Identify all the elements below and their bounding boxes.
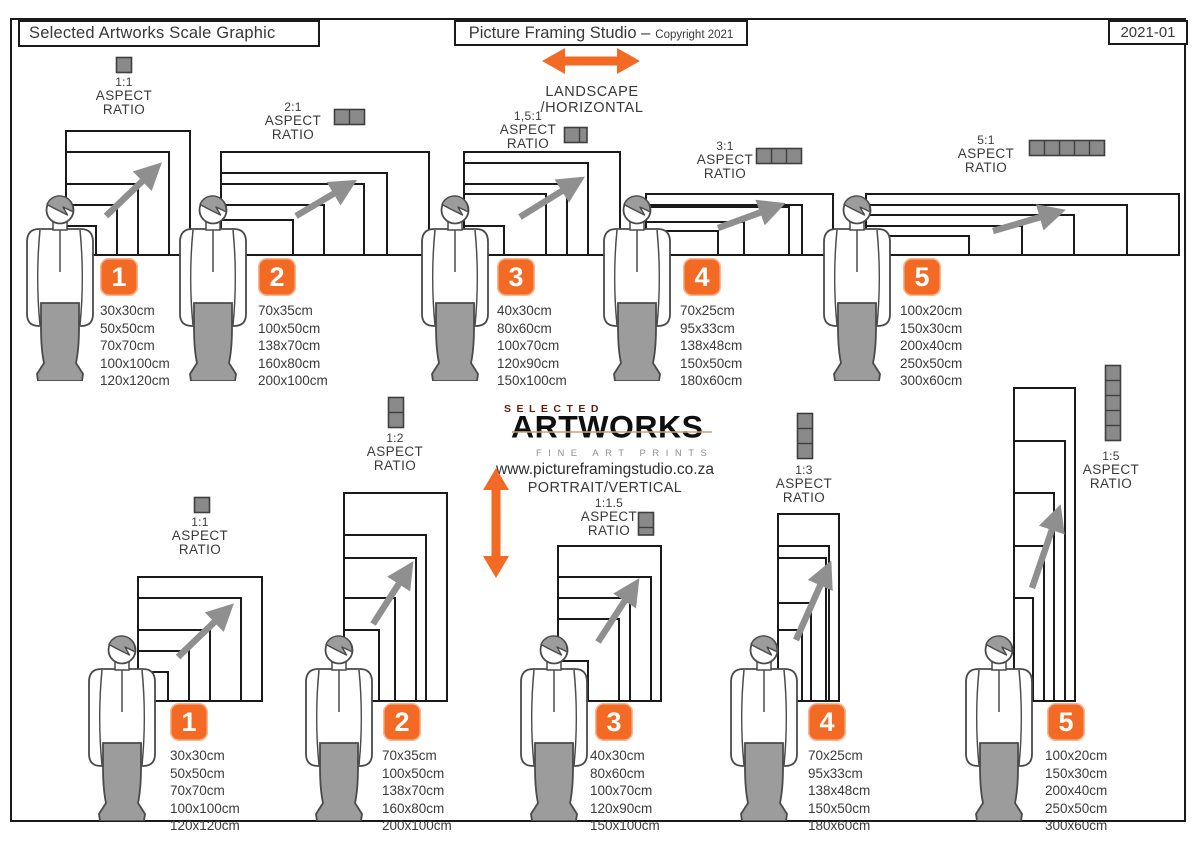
aspect-ratio-label: 1:1ASPECTRATIO <box>172 516 228 556</box>
size-item: 70x25cm <box>808 747 870 765</box>
human-figure <box>512 635 596 821</box>
human-figure <box>815 195 899 381</box>
size-item: 70x35cm <box>258 302 328 320</box>
aspect-word: ASPECT <box>500 123 556 137</box>
aspect-ratio-icon <box>387 396 405 429</box>
group-number-badge: 3 <box>595 703 633 741</box>
size-item: 120x90cm <box>590 800 660 818</box>
size-item: 180x60cm <box>680 372 742 390</box>
ratio-word: RATIO <box>96 103 152 117</box>
aspect-ratio-icon <box>563 126 589 144</box>
group-number: 2 <box>269 264 284 291</box>
size-list: 100x20cm150x30cm200x40cm250x50cm300x60cm <box>900 302 962 390</box>
aspect-ratio-icon <box>333 108 366 126</box>
aspect-word: ASPECT <box>958 147 1014 161</box>
size-item: 200x100cm <box>258 372 328 390</box>
size-item: 100x100cm <box>100 355 170 373</box>
size-item: 40x30cm <box>590 747 660 765</box>
size-list: 30x30cm50x50cm70x70cm100x100cm120x120cm <box>100 302 170 390</box>
size-list: 70x35cm100x50cm138x70cm160x80cm200x100cm <box>258 302 328 390</box>
size-item: 250x50cm <box>1045 800 1107 818</box>
size-item: 70x70cm <box>170 782 240 800</box>
human-figure <box>413 195 497 381</box>
size-item: 50x50cm <box>170 765 240 783</box>
group-number-badge: 3 <box>497 258 535 296</box>
size-item: 100x70cm <box>590 782 660 800</box>
size-list: 30x30cm50x50cm70x70cm100x100cm120x120cm <box>170 747 240 835</box>
group-number-badge: 1 <box>170 703 208 741</box>
group-number-badge: 1 <box>100 258 138 296</box>
group-number-badge: 2 <box>383 703 421 741</box>
size-item: 200x100cm <box>382 817 452 835</box>
size-item: 70x70cm <box>100 337 170 355</box>
size-item: 180x60cm <box>808 817 870 835</box>
group-number: 1 <box>181 709 196 736</box>
size-list: 70x25cm95x33cm138x48cm150x50cm180x60cm <box>680 302 742 390</box>
size-item: 250x50cm <box>900 355 962 373</box>
size-list: 40x30cm80x60cm100x70cm120x90cm150x100cm <box>590 747 660 835</box>
group-number: 2 <box>394 709 409 736</box>
size-item: 138x48cm <box>680 337 742 355</box>
size-item: 160x80cm <box>382 800 452 818</box>
size-item: 120x90cm <box>497 355 567 373</box>
size-item: 150x50cm <box>680 355 742 373</box>
human-figure <box>171 195 255 381</box>
human-figure <box>18 195 102 381</box>
group-number: 5 <box>1058 709 1073 736</box>
size-list: 40x30cm80x60cm100x70cm120x90cm150x100cm <box>497 302 567 390</box>
size-item: 100x100cm <box>170 800 240 818</box>
size-item: 138x48cm <box>808 782 870 800</box>
size-item: 300x60cm <box>1045 817 1107 835</box>
aspect-word: ASPECT <box>172 529 228 543</box>
ratio-word: RATIO <box>776 491 832 505</box>
aspect-ratio-label: 1:3ASPECTRATIO <box>776 464 832 504</box>
aspect-ratio-label: 2:1ASPECTRATIO <box>265 101 321 141</box>
size-item: 138x70cm <box>258 337 328 355</box>
aspect-word: ASPECT <box>96 89 152 103</box>
aspect-ratio-label: 1:5ASPECTRATIO <box>1083 450 1139 490</box>
group-number-badge: 2 <box>258 258 296 296</box>
aspect-ratio-label: 1,5:1ASPECTRATIO <box>500 110 556 150</box>
size-item: 300x60cm <box>900 372 962 390</box>
group-number-badge: 5 <box>1047 703 1085 741</box>
ratio-word: RATIO <box>581 524 637 538</box>
aspect-ratio-label: 5:1ASPECTRATIO <box>958 134 1014 174</box>
size-item: 200x40cm <box>1045 782 1107 800</box>
aspect-ratio-label: 1:1.5ASPECTRATIO <box>581 497 637 537</box>
diagram-canvas: 1:1ASPECTRATIO130x30cm50x50cm70x70cm100x… <box>0 0 1200 842</box>
group-number-badge: 4 <box>683 258 721 296</box>
ratio-word: RATIO <box>172 543 228 557</box>
size-item: 150x50cm <box>808 800 870 818</box>
aspect-ratio-label: 1:1ASPECTRATIO <box>96 76 152 116</box>
size-item: 120x120cm <box>100 372 170 390</box>
group-number: 4 <box>694 264 709 291</box>
size-item: 80x60cm <box>590 765 660 783</box>
size-item: 100x50cm <box>258 320 328 338</box>
aspect-word: ASPECT <box>697 153 753 167</box>
ratio-word: RATIO <box>1083 477 1139 491</box>
aspect-ratio-icon <box>796 412 814 460</box>
size-item: 100x20cm <box>1045 747 1107 765</box>
group-number: 3 <box>606 709 621 736</box>
size-item: 150x100cm <box>497 372 567 390</box>
group-number-badge: 5 <box>903 258 941 296</box>
human-figure <box>722 635 806 821</box>
size-item: 120x120cm <box>170 817 240 835</box>
size-item: 30x30cm <box>100 302 170 320</box>
aspect-ratio-label: 3:1ASPECTRATIO <box>697 140 753 180</box>
size-item: 95x33cm <box>680 320 742 338</box>
group-number: 1 <box>111 264 126 291</box>
size-item: 160x80cm <box>258 355 328 373</box>
size-item: 70x25cm <box>680 302 742 320</box>
size-item: 95x33cm <box>808 765 870 783</box>
ratio-word: RATIO <box>367 459 423 473</box>
aspect-ratio-icon <box>637 511 655 537</box>
size-item: 150x100cm <box>590 817 660 835</box>
size-item: 100x20cm <box>900 302 962 320</box>
group-number: 5 <box>914 264 929 291</box>
group-number-badge: 4 <box>808 703 846 741</box>
size-item: 70x35cm <box>382 747 452 765</box>
aspect-word: ASPECT <box>265 114 321 128</box>
aspect-ratio-icon <box>115 56 133 74</box>
size-item: 50x50cm <box>100 320 170 338</box>
ratio-word: RATIO <box>958 161 1014 175</box>
aspect-ratio-icon <box>755 147 803 165</box>
size-list: 100x20cm150x30cm200x40cm250x50cm300x60cm <box>1045 747 1107 835</box>
aspect-ratio-icon <box>193 496 211 514</box>
group-number: 4 <box>819 709 834 736</box>
size-item: 150x30cm <box>900 320 962 338</box>
scale-graphic-page: Selected Artworks Scale Graphic Picture … <box>0 0 1200 842</box>
aspect-word: ASPECT <box>367 445 423 459</box>
group-number: 3 <box>508 264 523 291</box>
aspect-word: ASPECT <box>776 477 832 491</box>
ratio-word: RATIO <box>265 128 321 142</box>
size-item: 30x30cm <box>170 747 240 765</box>
aspect-ratio-label: 1:2ASPECTRATIO <box>367 432 423 472</box>
aspect-ratio-icon <box>1028 139 1106 157</box>
human-figure <box>957 635 1041 821</box>
size-list: 70x35cm100x50cm138x70cm160x80cm200x100cm <box>382 747 452 835</box>
size-item: 200x40cm <box>900 337 962 355</box>
size-item: 100x50cm <box>382 765 452 783</box>
size-item: 80x60cm <box>497 320 567 338</box>
human-figure <box>595 195 679 381</box>
aspect-ratio-icon <box>1104 364 1122 442</box>
ratio-word: RATIO <box>500 137 556 151</box>
size-item: 40x30cm <box>497 302 567 320</box>
size-item: 138x70cm <box>382 782 452 800</box>
aspect-word: ASPECT <box>1083 463 1139 477</box>
size-item: 150x30cm <box>1045 765 1107 783</box>
size-list: 70x25cm95x33cm138x48cm150x50cm180x60cm <box>808 747 870 835</box>
human-figure <box>297 635 381 821</box>
aspect-word: ASPECT <box>581 510 637 524</box>
size-item: 100x70cm <box>497 337 567 355</box>
ratio-word: RATIO <box>697 167 753 181</box>
human-figure <box>80 635 164 821</box>
